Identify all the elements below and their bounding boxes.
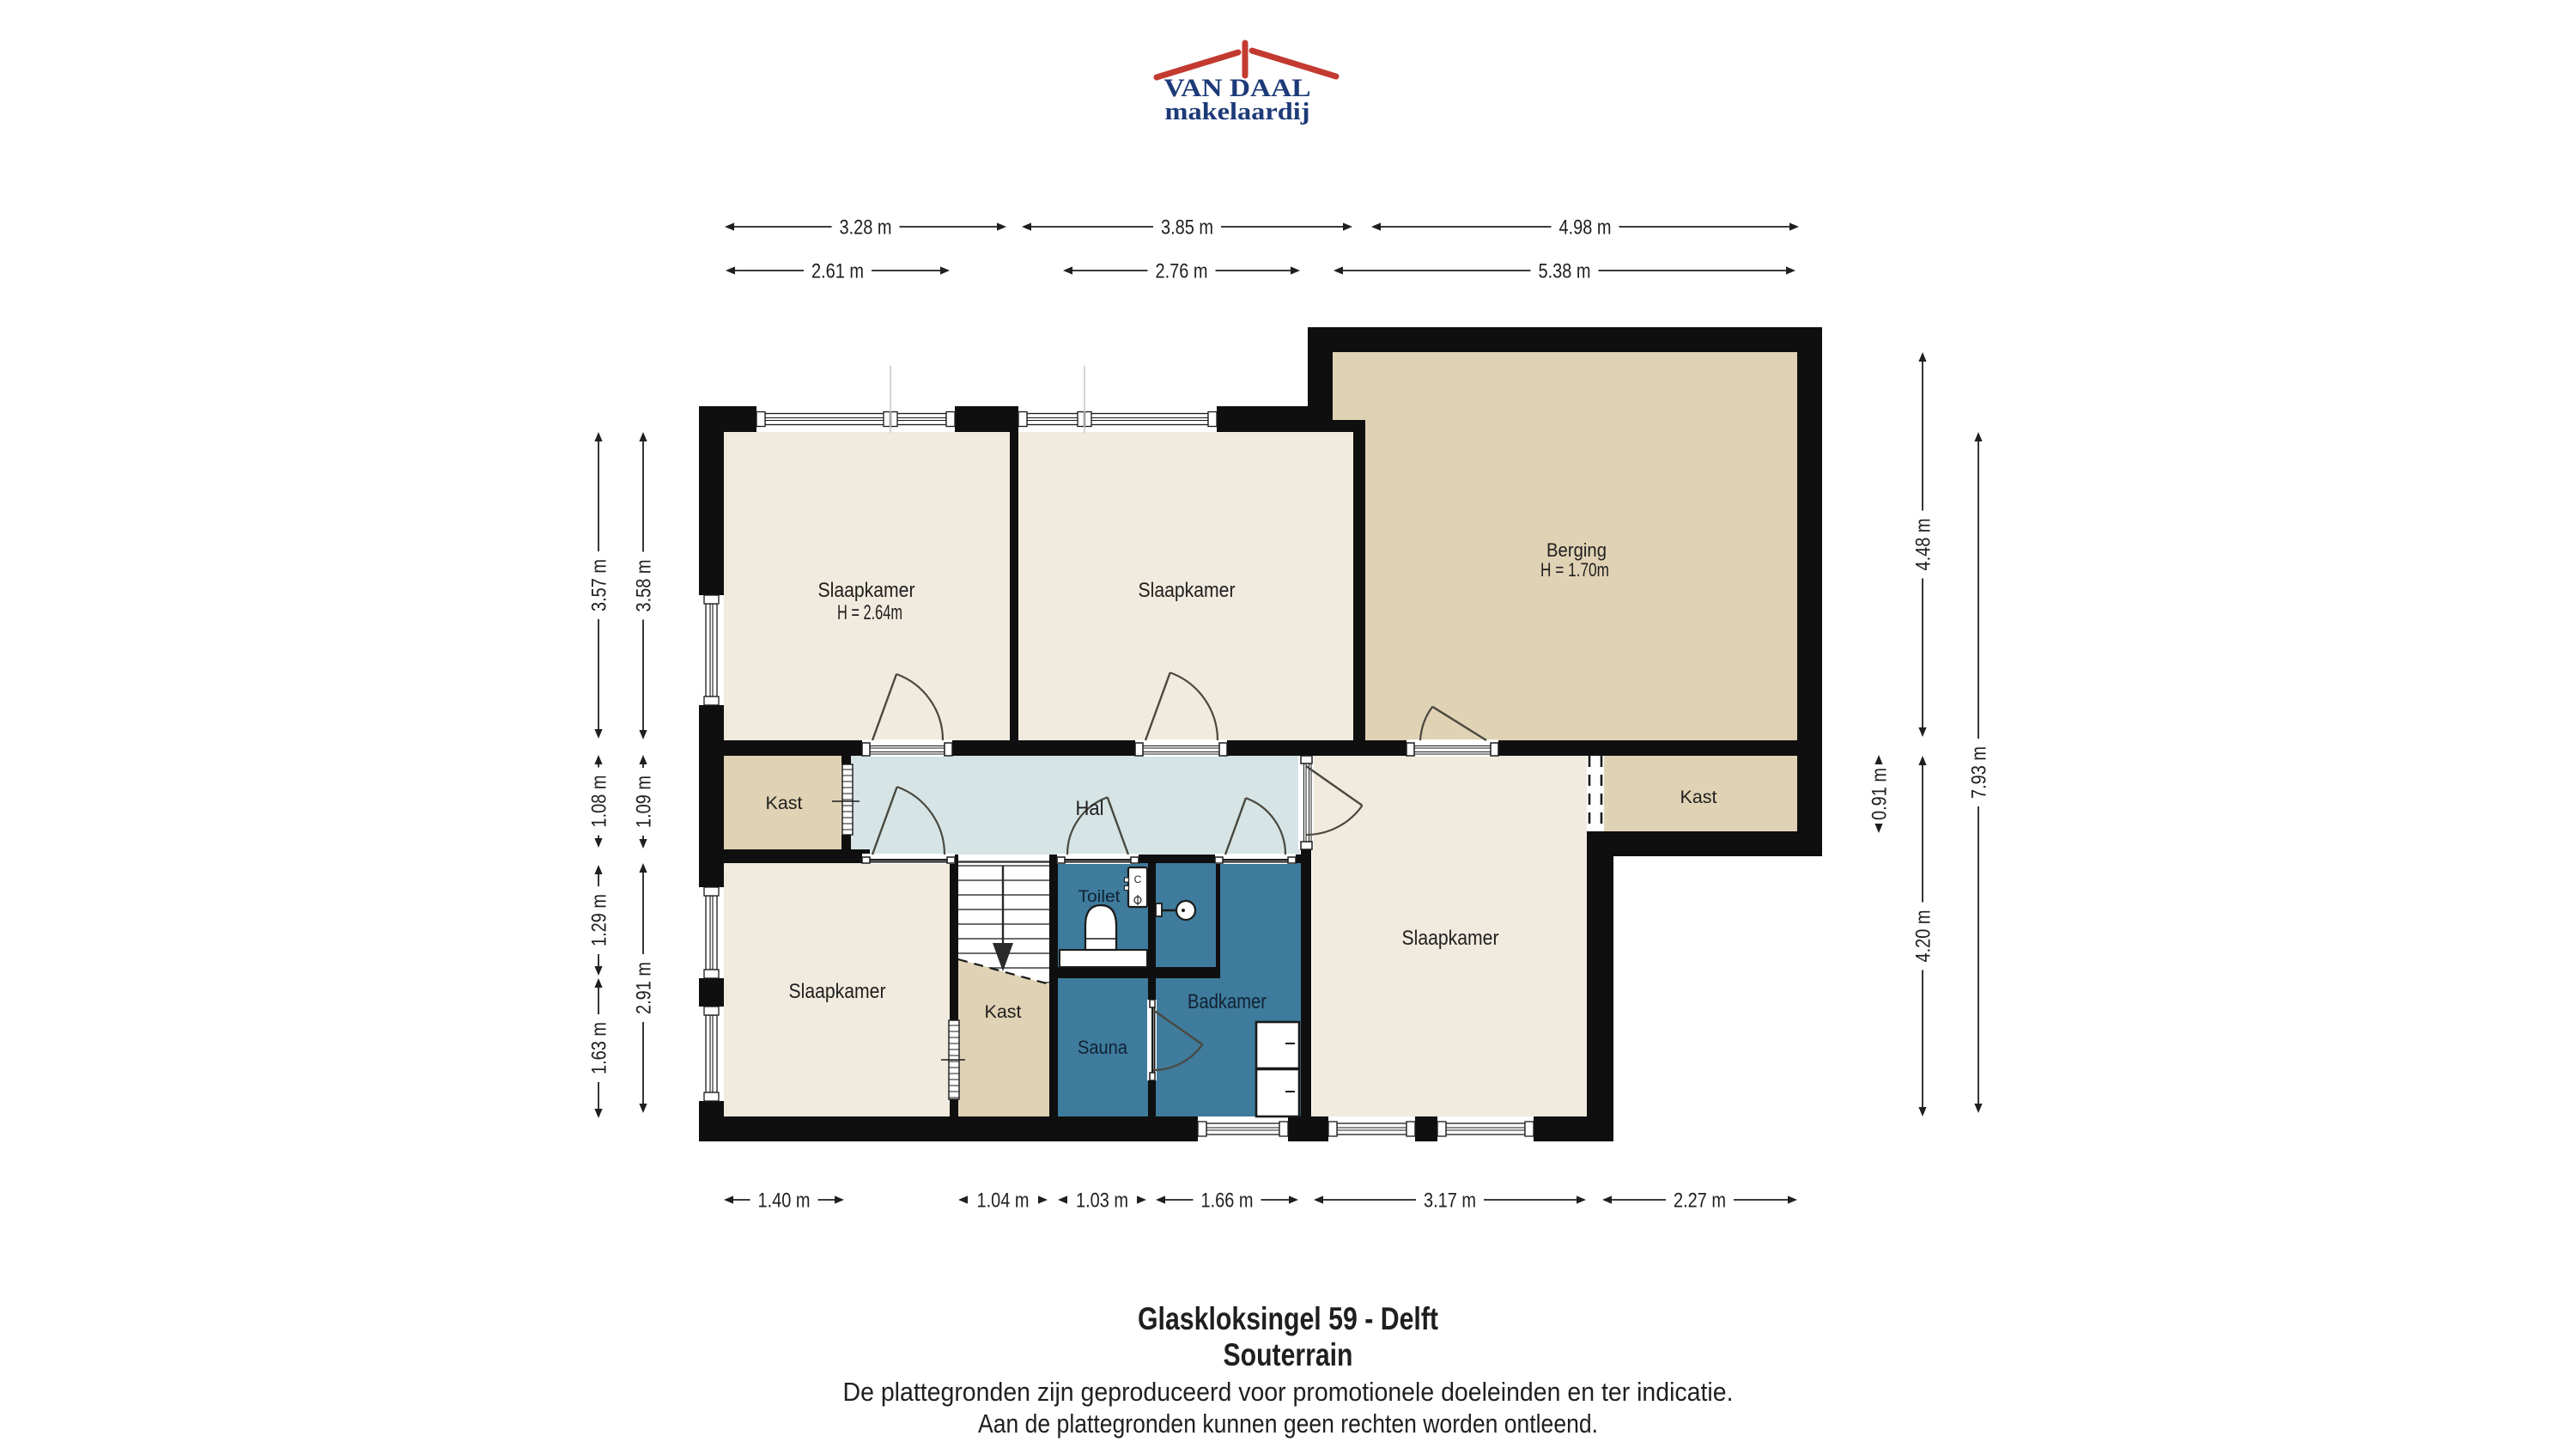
svg-text:1.08 m: 1.08 m [588, 776, 611, 828]
svg-text:Sauna: Sauna [1078, 1037, 1128, 1058]
svg-text:0.91 m: 0.91 m [1868, 768, 1892, 820]
svg-text:7.93 m: 7.93 m [1968, 746, 1991, 799]
svg-text:makelaardij: makelaardij [1165, 98, 1310, 125]
svg-text:Kast: Kast [985, 1002, 1022, 1022]
svg-text:3.85 m: 3.85 m [1161, 216, 1213, 240]
svg-text:4.98 m: 4.98 m [1559, 216, 1612, 240]
svg-text:Slaapkamer: Slaapkamer [818, 579, 915, 602]
svg-text:1.63 m: 1.63 m [588, 1022, 611, 1074]
svg-text:Slaapkamer: Slaapkamer [789, 980, 886, 1003]
svg-text:1.66 m: 1.66 m [1201, 1189, 1254, 1213]
svg-text:1.29 m: 1.29 m [588, 894, 611, 946]
svg-text:Aan de plattegronden kunnen ge: Aan de plattegronden kunnen geen rechten… [978, 1408, 1598, 1439]
svg-text:4.20 m: 4.20 m [1912, 910, 1935, 963]
svg-text:Toilet: Toilet [1078, 888, 1121, 906]
svg-text:H = 1.70m: H = 1.70m [1540, 559, 1609, 581]
svg-text:Hal: Hal [1076, 797, 1104, 820]
svg-text:2.76 m: 2.76 m [1156, 260, 1208, 283]
svg-text:1.09 m: 1.09 m [633, 776, 656, 828]
svg-text:1.40 m: 1.40 m [758, 1189, 811, 1213]
svg-text:2.27 m: 2.27 m [1674, 1189, 1726, 1213]
svg-text:Slaapkamer: Slaapkamer [1139, 579, 1236, 602]
svg-text:5.38 m: 5.38 m [1539, 260, 1591, 283]
svg-text:H = 2.64m: H = 2.64m [837, 601, 902, 624]
svg-text:3.57 m: 3.57 m [588, 559, 611, 611]
svg-text:De plattegronden zijn geproduc: De plattegronden zijn geproduceerd voor … [843, 1377, 1734, 1407]
svg-text:C: C [1134, 873, 1142, 885]
svg-text:Kast: Kast [766, 794, 803, 813]
svg-text:1.03 m: 1.03 m [1076, 1189, 1128, 1213]
svg-text:Slaapkamer: Slaapkamer [1402, 927, 1499, 950]
svg-text:2.91 m: 2.91 m [633, 962, 656, 1014]
svg-text:Glaskloksingel 59 - Delft: Glaskloksingel 59 - Delft [1138, 1301, 1438, 1336]
svg-text:3.28 m: 3.28 m [840, 216, 892, 240]
svg-text:Badkamer: Badkamer [1188, 990, 1267, 1013]
svg-text:Souterrain: Souterrain [1224, 1337, 1353, 1372]
svg-text:Berging: Berging [1546, 539, 1607, 561]
svg-text:1.04 m: 1.04 m [977, 1189, 1030, 1213]
svg-text:3.17 m: 3.17 m [1424, 1189, 1476, 1213]
svg-text:4.48 m: 4.48 m [1912, 519, 1935, 571]
svg-text:3.58 m: 3.58 m [633, 560, 656, 612]
svg-text:Kast: Kast [1680, 788, 1717, 807]
svg-text:2.61 m: 2.61 m [811, 260, 864, 283]
